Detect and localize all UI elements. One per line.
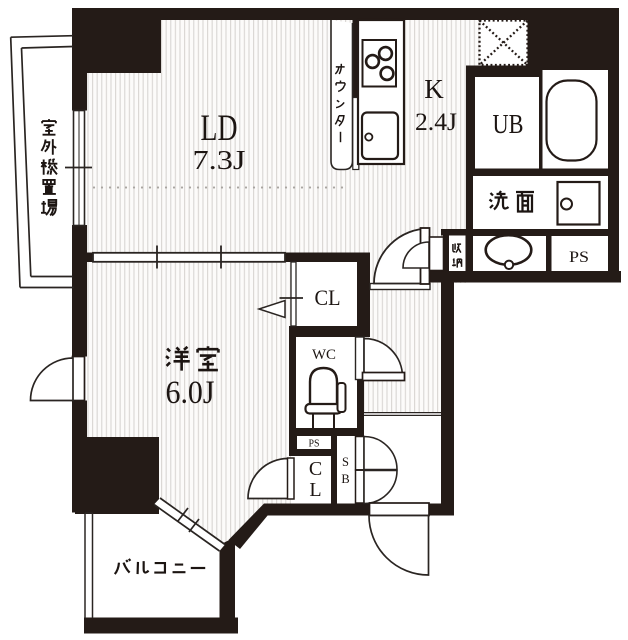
svg-text:WC: WC	[312, 347, 336, 363]
svg-text:6.0J: 6.0J	[166, 375, 215, 411]
svg-text:B: B	[341, 472, 349, 486]
svg-text:UB: UB	[493, 109, 524, 139]
svg-text:L: L	[309, 479, 321, 501]
svg-text:PS: PS	[309, 438, 320, 450]
svg-text:7.3J: 7.3J	[193, 145, 246, 175]
svg-text:S: S	[342, 455, 349, 469]
svg-text:2.4J: 2.4J	[415, 109, 457, 136]
svg-text:PS: PS	[569, 249, 589, 266]
svg-text:C: C	[309, 458, 322, 480]
svg-text:CL: CL	[315, 285, 341, 310]
svg-text:LD: LD	[201, 108, 238, 149]
svg-text:K: K	[424, 74, 444, 104]
